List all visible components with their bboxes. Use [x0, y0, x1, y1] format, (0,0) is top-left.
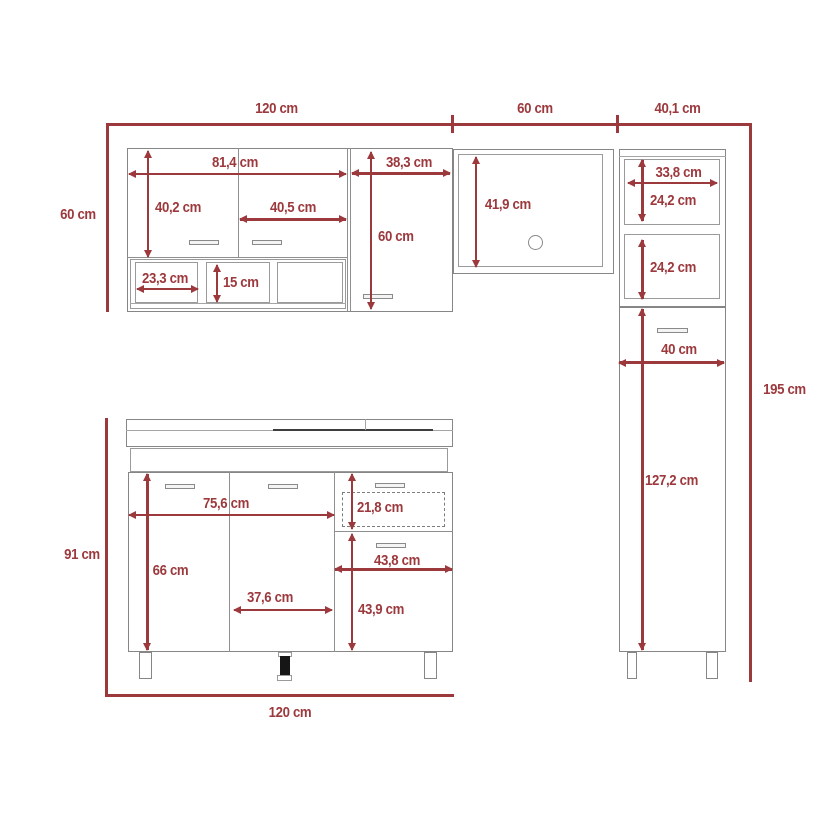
base-left-leg [139, 652, 152, 680]
top-dimension-line [106, 123, 752, 126]
dim-label-wall-tall-door-height: 60 cm [378, 228, 422, 246]
arrow-microwave-interior-height [475, 157, 478, 267]
arrow-wall-tall-door-width [352, 172, 451, 175]
dim-label-base-drawer-height: 21,8 cm [357, 499, 405, 517]
dim-label-base-width: 120 cm [264, 704, 317, 722]
countertop-outline [126, 419, 453, 447]
cabinet-dimension-diagram: 120 cm 60 cm 40,1 cm 60 cm 195 cm 91 cm … [0, 0, 840, 840]
dim-label-base-door-height: 66 cm [151, 562, 191, 580]
dim-label-tall-door-height: 127,2 cm [645, 472, 700, 490]
dim-label-top-wall-group-width: 120 cm [250, 100, 304, 118]
base-lower-drawer-handle [376, 543, 407, 548]
dim-label-microwave-interior-height: 41,9 cm [485, 196, 527, 214]
top-dimension-tick-1 [451, 115, 454, 133]
dim-label-wall-right-door-width: 40,5 cm [267, 199, 320, 217]
dim-label-base-doors-span: 75,6 cm [200, 495, 253, 513]
dim-label-hutch-upper-cubby-height: 24,2 cm [650, 192, 698, 210]
arrow-base-right-section-height [351, 534, 354, 651]
arrow-wall-shelf-height [216, 265, 219, 302]
arrow-wall-shelf-compartment-width [137, 288, 198, 291]
arrow-wall-tall-door-height [370, 152, 373, 309]
countertop-dark-strip [273, 429, 433, 432]
dim-label-hutch-lower-cubby-height: 24,2 cm [650, 259, 698, 277]
arrow-wall-right-door-width [240, 218, 347, 221]
top-dimension-tick-2 [616, 115, 619, 133]
tall-cabinet-right-leg [706, 652, 719, 679]
dim-label-wall-tall-door-width: 38,3 cm [384, 154, 433, 172]
wall-left-door-handle [189, 240, 219, 245]
base-width-dimension-line [105, 694, 454, 697]
arrow-base-door-height [146, 474, 149, 650]
base-right-leg [424, 652, 437, 680]
arrow-base-drawer-height [351, 474, 354, 529]
countertop-divider-tick [365, 419, 366, 430]
wall-tall-door-handle [363, 294, 393, 299]
tall-cabinet-left-leg [627, 652, 637, 679]
base-middle-door-handle [268, 484, 298, 489]
cable-hole-icon [528, 235, 543, 250]
arrow-hutch-upper-cubby-height [641, 160, 644, 221]
dim-label-hutch-cubby-width: 33,8 cm [654, 164, 702, 182]
dim-label-top-microwave-width: 60 cm [509, 100, 562, 118]
arrow-tall-cabinet-width [619, 361, 724, 364]
counter-front-band [130, 448, 449, 472]
arrow-wall-doors-span [129, 173, 346, 176]
dim-label-wall-doors-span: 81,4 cm [191, 154, 279, 172]
base-left-door-handle [165, 484, 195, 489]
wall-shelf-compartment-3 [277, 262, 343, 303]
dim-label-top-tall-width: 40,1 cm [651, 100, 705, 118]
dim-label-wall-shelf-height: 15 cm [223, 274, 267, 292]
left-height-dimension-line [106, 123, 109, 312]
adjustable-foot-cylinder [280, 656, 290, 676]
tall-cabinet-drawer-handle [657, 328, 688, 333]
dim-label-wall-shelf-compartment-width: 23,3 cm [139, 270, 192, 288]
arrow-hutch-lower-cubby-height [641, 240, 644, 299]
dim-label-wall-left-door-height: 40,2 cm [153, 199, 202, 217]
arrow-base-middle-door-width [234, 609, 333, 612]
dim-label-base-height: 91 cm [56, 546, 109, 564]
base-door-divider-2 [334, 472, 335, 652]
dim-label-base-right-section-height: 43,9 cm [358, 601, 409, 619]
dim-label-tall-cabinet-width: 40 cm [653, 341, 706, 359]
arrow-wall-left-door-height [147, 151, 150, 257]
right-height-dimension-line [749, 123, 752, 682]
wall-right-door-handle [252, 240, 282, 245]
dim-label-base-right-section-width: 43,8 cm [371, 552, 424, 570]
arrow-base-doors-span [129, 514, 334, 517]
adjustable-foot-bottom-plate [277, 675, 292, 681]
dim-label-total-height: 195 cm [758, 381, 812, 399]
arrow-tall-door-height [641, 309, 644, 650]
dim-label-base-middle-door-width: 37,6 cm [244, 589, 297, 607]
base-drawer-handle [375, 483, 405, 488]
dim-label-wall-height: 60 cm [52, 206, 105, 224]
hutch-top-band-line [619, 156, 726, 157]
wall-shelf-inner-bottom-line [130, 303, 347, 304]
